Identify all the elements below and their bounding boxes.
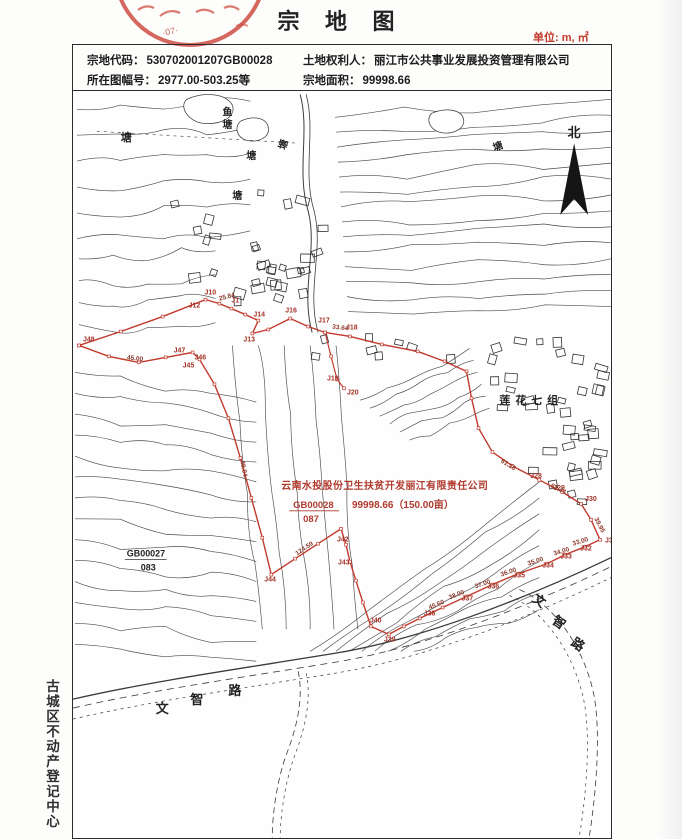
area-value: 99998.66 xyxy=(363,75,411,87)
svg-text:塘: 塘 xyxy=(276,138,291,151)
svg-text:路: 路 xyxy=(228,683,242,698)
ponds-stream-layer xyxy=(97,94,464,332)
svg-text:塘: 塘 xyxy=(222,118,232,131)
svg-text:J16: J16 xyxy=(285,308,297,315)
owner-label: 土地权利人： xyxy=(303,55,372,67)
parcel-map-document: ·07· 宗 地 图 单位: m, ㎡ 宗地代码：530702001207GB0… xyxy=(0,0,682,839)
svg-text:39.95: 39.95 xyxy=(592,516,606,534)
map-frame: 云南水投股份卫生扶贫开发丽江有限责任公司GB0002808799998.66（1… xyxy=(72,90,612,839)
svg-text:GB00028: GB00028 xyxy=(293,500,333,511)
svg-text:J10: J10 xyxy=(205,290,217,297)
svg-text:J39: J39 xyxy=(384,636,396,643)
svg-text:塘: 塘 xyxy=(121,130,132,144)
unit-label: 单位: m, ㎡ xyxy=(533,29,589,45)
map-labels-layer: J1J10J12J14J13J16J17J18J19J20J28J29J30J3… xyxy=(83,105,611,716)
sheet-value: 2977.00-503.25等 xyxy=(158,75,250,87)
sheet-number-row: 所在图幅号：2977.00-503.25等 xyxy=(87,72,250,88)
north-arrow-icon: 北 xyxy=(560,125,588,215)
svg-text:J28: J28 xyxy=(530,473,542,480)
svg-text:J13: J13 xyxy=(243,336,255,343)
registry-vertical-text: 古城区不动产登记中心 xyxy=(41,679,61,829)
svg-text:J32: J32 xyxy=(580,546,592,553)
svg-text:61.28: 61.28 xyxy=(499,458,517,473)
svg-text:33.64: 33.64 xyxy=(332,324,349,333)
svg-text:083: 083 xyxy=(141,563,156,573)
parcel-boundary-layer: 云南水投股份卫生扶贫开发丽江有限责任公司GB0002808799998.66（1… xyxy=(78,298,602,636)
svg-text:塘: 塘 xyxy=(491,138,505,154)
svg-text:J20: J20 xyxy=(347,389,359,396)
svg-text:J45: J45 xyxy=(183,362,195,369)
buildings-layer xyxy=(170,190,609,505)
terrain-lines-layer xyxy=(75,98,611,662)
sheet-label: 所在图幅号： xyxy=(87,75,156,87)
svg-text:J48: J48 xyxy=(83,336,95,343)
svg-text:莲花七组: 莲花七组 xyxy=(499,393,563,407)
svg-text:云南水投股份卫生扶贫开发丽江有限责任公司: 云南水投股份卫生扶贫开发丽江有限责任公司 xyxy=(281,479,488,492)
owner-value: 丽江市公共事业发展投资管理有限公司 xyxy=(374,55,570,67)
parcel-info-table: 宗地代码：530702001207GB00028 所在图幅号：2977.00-5… xyxy=(72,44,612,90)
svg-text:鱼: 鱼 xyxy=(222,105,232,118)
area-row: 宗地面积：99998.66 xyxy=(303,72,410,88)
svg-text:J19: J19 xyxy=(327,375,339,382)
svg-text:GB00027: GB00027 xyxy=(127,549,165,559)
svg-text:智: 智 xyxy=(191,692,204,707)
svg-text:塘: 塘 xyxy=(232,189,242,202)
svg-text:文: 文 xyxy=(156,701,170,716)
svg-text:45.00: 45.00 xyxy=(127,354,144,363)
svg-text:J43: J43 xyxy=(338,560,350,567)
svg-text:塘: 塘 xyxy=(246,149,256,162)
owner-row: 土地权利人：丽江市公共事业发展投资管理有限公司 xyxy=(303,52,570,68)
parcel-code-row: 宗地代码：530702001207GB00028 xyxy=(87,52,272,68)
svg-text:J44: J44 xyxy=(264,577,276,584)
svg-text:124.59: 124.59 xyxy=(294,540,315,557)
svg-text:J46: J46 xyxy=(195,354,207,361)
roads-layer xyxy=(73,558,611,838)
svg-text:J17: J17 xyxy=(318,318,330,325)
svg-text:J37: J37 xyxy=(462,595,474,602)
svg-text:087: 087 xyxy=(303,514,319,525)
svg-text:J40: J40 xyxy=(370,617,382,624)
north-label: 北 xyxy=(568,125,581,140)
svg-text:J47: J47 xyxy=(174,347,186,354)
svg-text:J42: J42 xyxy=(337,537,349,544)
map-svg: 云南水投股份卫生扶贫开发丽江有限责任公司GB0002808799998.66（1… xyxy=(73,91,611,838)
svg-text:J14: J14 xyxy=(253,312,265,319)
svg-text:J31: J31 xyxy=(605,538,611,545)
area-label: 宗地面积： xyxy=(303,75,361,87)
svg-text:J34: J34 xyxy=(542,563,554,570)
svg-text:J30: J30 xyxy=(585,496,597,503)
svg-text:J12: J12 xyxy=(189,303,201,310)
parcel-code-label: 宗地代码： xyxy=(87,55,145,67)
svg-text:40.04: 40.04 xyxy=(238,460,248,478)
svg-text:45.60: 45.60 xyxy=(428,599,446,612)
scan-shade xyxy=(656,0,682,839)
svg-text:99998.66（150.00亩）: 99998.66（150.00亩） xyxy=(352,498,454,511)
parcel-code-value: 530702001207GB00028 xyxy=(147,55,273,67)
